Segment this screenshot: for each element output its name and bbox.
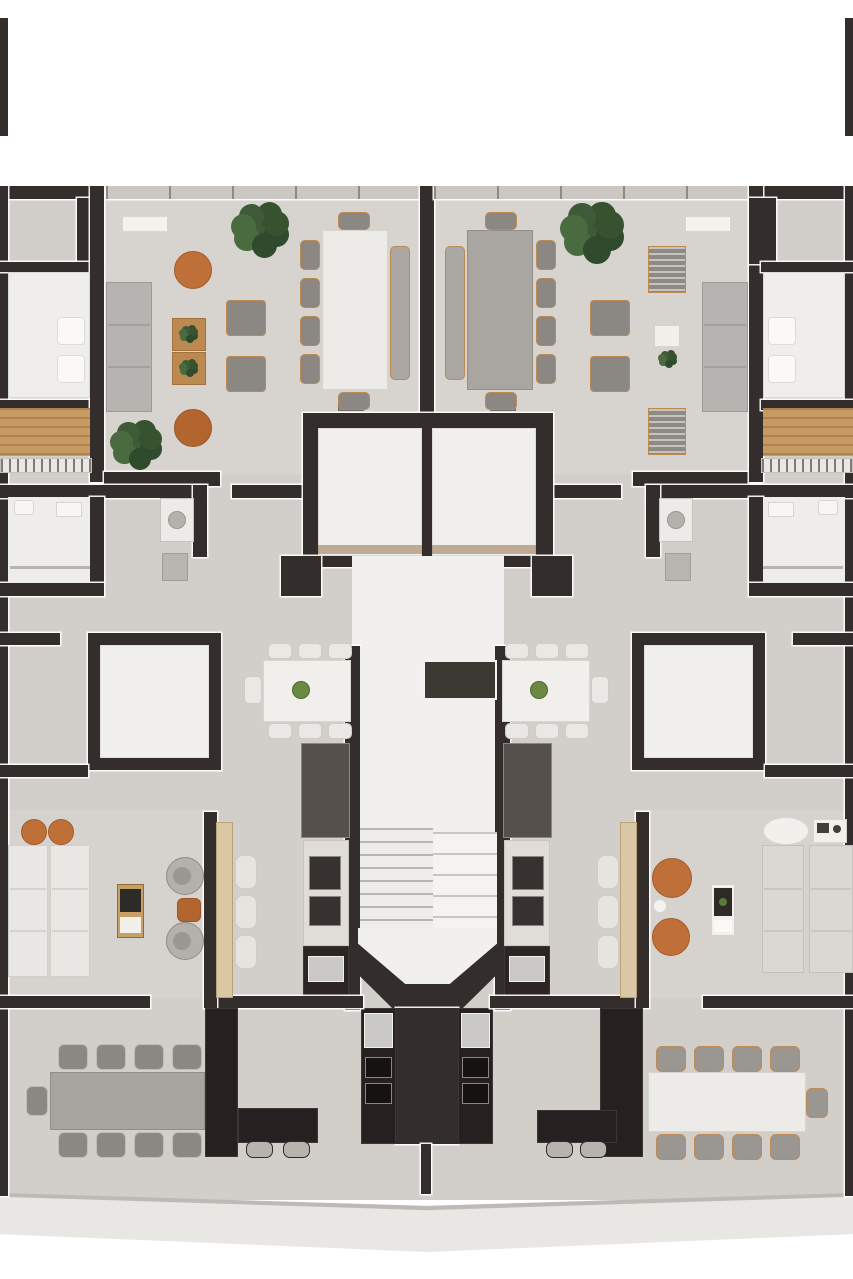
core-wing-right <box>532 556 572 596</box>
marble-roomC <box>644 645 753 758</box>
centerpieceC <box>530 681 548 699</box>
wall-left-outer-lower <box>0 472 8 1196</box>
tall-cabinetD <box>620 822 637 998</box>
floor-plan <box>0 0 853 1279</box>
core-wing-left <box>281 556 321 596</box>
side-chairsB-3 <box>235 935 257 969</box>
poufB-1 <box>21 819 47 845</box>
applianceC <box>665 553 691 581</box>
side-chairsD-2 <box>597 895 619 929</box>
coffee-tableB-tray-light <box>120 917 141 933</box>
lounge-chairC-1 <box>648 246 686 293</box>
dining-chairsB-mid-top-1 <box>268 643 292 659</box>
dining-endchairD-south <box>806 1088 828 1118</box>
plantA-corner-leaf-6 <box>110 431 133 454</box>
sofaB1-seam-1 <box>10 888 46 890</box>
wall-bathA-bed-sep <box>0 262 92 272</box>
round-chairD-1 <box>652 858 692 898</box>
wall-center-stub <box>421 1144 431 1194</box>
stoolD-1 <box>546 1141 573 1158</box>
balconyC-deck <box>763 408 853 456</box>
coffee-tableD-tray-light <box>714 920 732 932</box>
dining-chairsD-south-bottom-4 <box>770 1134 800 1160</box>
dining-chairsD-south-top-1 <box>656 1046 686 1072</box>
bathB-toilet <box>14 500 34 515</box>
elevator-cab-left <box>318 428 422 556</box>
plantC-palm-leaf-7 <box>596 211 624 239</box>
dining-endchairA-bottom <box>338 392 370 410</box>
bathC2-sink <box>768 502 794 517</box>
applianceB <box>162 553 188 581</box>
stoolD-2 <box>580 1141 607 1158</box>
armchairC-1 <box>590 300 630 336</box>
sofaB1-seam-2 <box>10 930 46 932</box>
kitchenD-sink <box>364 1013 393 1048</box>
wall-livingC-south <box>633 472 750 486</box>
side-chairsB-2 <box>235 895 257 929</box>
bedroomB-wall-north <box>0 633 60 645</box>
dining-tableD-south <box>648 1072 806 1132</box>
dining-chairsB-mid-top-3 <box>328 643 352 659</box>
dining-chairsB-south-top-3 <box>134 1044 164 1070</box>
round-chairD-2 <box>652 918 690 956</box>
wall-livingA-west <box>90 186 104 482</box>
wall-laundryB-east <box>193 485 207 557</box>
wall-hall-top-right-b <box>550 485 621 498</box>
sofaB-column-2 <box>50 845 90 977</box>
sofaA-seam-2 <box>108 366 150 368</box>
kitchenB-cabinets <box>301 743 350 838</box>
dining-endchairB-mid <box>244 676 262 704</box>
dining-chairsD-south-bottom-1 <box>656 1134 686 1160</box>
wall-hall-top-left-b <box>232 485 303 498</box>
dining-chairsC-right-3 <box>536 316 556 346</box>
dining-benchC <box>445 246 465 380</box>
dining-chairsA-left-4 <box>300 354 320 384</box>
kitchenC-sink <box>509 956 545 982</box>
dining-tableA <box>322 230 388 390</box>
side-chairsD-3 <box>597 935 619 969</box>
dining-chairsA-left-1 <box>300 240 320 270</box>
sofaD-column-2 <box>809 845 853 973</box>
armchairC-2 <box>590 356 630 392</box>
dining-chairsB-mid-bottom-1 <box>268 723 292 739</box>
elevator-door-left <box>318 545 422 554</box>
armchairA-2 <box>226 356 266 392</box>
wall-stub-top-left <box>0 18 8 136</box>
terrace-south <box>0 1196 853 1252</box>
plantC-palm-leaf-5 <box>583 236 611 264</box>
kitchenE-sink <box>461 1013 490 1048</box>
coffee-tableB-tray-dark <box>120 889 141 912</box>
dining-chairsB-south-bottom-2 <box>96 1132 126 1158</box>
dining-chairsC-mid-bottom-3 <box>565 723 589 739</box>
dining-chairsC-right-1 <box>536 240 556 270</box>
consoleA <box>122 216 168 232</box>
side-tableC <box>654 325 680 347</box>
elevator-lobby <box>352 556 504 646</box>
coffee-tableD-plant <box>719 898 727 906</box>
ball-tableD <box>653 899 667 913</box>
dining-tableC <box>467 230 533 390</box>
dining-endchairC-mid <box>591 676 609 704</box>
dining-chairsB-south-top-2 <box>96 1044 126 1070</box>
kitchenE-cooktop-1 <box>462 1057 489 1078</box>
bedroomC-wall-north <box>793 633 853 645</box>
wall-center-south <box>396 1008 458 1144</box>
side-chairsD-1 <box>597 855 619 889</box>
bedroomC-wall-south <box>765 765 853 777</box>
bathB-sink <box>56 502 82 517</box>
sofaD2-seam-1 <box>811 888 851 890</box>
dining-chairsC-right-2 <box>536 278 556 308</box>
sofaB-column-1 <box>8 845 48 977</box>
sofaD2-seam-2 <box>811 930 851 932</box>
stoolB-1 <box>246 1141 273 1158</box>
wall-livingD-divider <box>636 812 649 1008</box>
lobby-doormat <box>423 660 497 700</box>
sofaA <box>106 282 152 412</box>
poufB-2 <box>48 819 74 845</box>
sofaB2-seam-1 <box>52 888 88 890</box>
trayD-item <box>817 823 829 833</box>
dining-chairsA-left-3 <box>300 316 320 346</box>
islandB-arm <box>238 1108 318 1143</box>
sofaD1-seam-1 <box>764 888 802 890</box>
lounge-chairC-2 <box>648 408 686 455</box>
bathB-shower-line <box>10 566 90 569</box>
oval-side-tableD <box>763 817 809 845</box>
trayD-dot <box>833 825 841 833</box>
dining-chairsC-mid-bottom-2 <box>535 723 559 739</box>
plantA-large-leaf-7 <box>264 211 289 236</box>
centerpieceB <box>292 681 310 699</box>
kitchenC-oven-1 <box>512 856 544 890</box>
dining-chairsB-mid-bottom-2 <box>298 723 322 739</box>
dining-chairsC-mid-top-1 <box>505 643 529 659</box>
sofaB2-seam-2 <box>52 930 88 932</box>
dining-chairsD-south-top-2 <box>694 1046 724 1072</box>
balconyA-railing <box>0 458 92 473</box>
dining-endchairC-bottom <box>485 392 517 410</box>
bedC-pillow-2 <box>768 355 796 383</box>
plantA-corner-leaf-7 <box>140 428 163 451</box>
dining-endchairB-south <box>26 1086 48 1116</box>
dining-chairsD-south-top-3 <box>732 1046 762 1072</box>
window-band-top-left <box>106 186 420 199</box>
wall-bathC-bed-sep <box>761 262 853 272</box>
wall-bathB-south <box>0 583 104 596</box>
sofaD1-seam-2 <box>764 930 802 932</box>
poufA <box>174 409 212 447</box>
wall-bottomleft-a <box>0 996 150 1008</box>
stoolB-2 <box>283 1141 310 1158</box>
kitchenB-oven-2 <box>309 896 341 926</box>
window-band-top-right <box>434 186 750 199</box>
kitchenC-cabinets <box>503 743 552 838</box>
poufB-3 <box>177 898 201 922</box>
dining-tableB-south <box>50 1072 205 1130</box>
wall-bathC2-west <box>749 497 763 590</box>
kitchenD-cooktop-2 <box>365 1083 392 1104</box>
balconyA-deck <box>0 408 90 456</box>
sofaC-seam-1 <box>704 324 746 326</box>
washerB-drum <box>168 511 186 529</box>
lounge-chairB-2-seat <box>173 932 191 950</box>
sofaA-seam-1 <box>108 324 150 326</box>
wall-livingA-south <box>104 472 220 486</box>
dining-chairsC-mid-top-2 <box>535 643 559 659</box>
round-chairA <box>174 251 212 289</box>
dining-benchA <box>390 246 410 380</box>
islandD-arm <box>537 1110 617 1143</box>
stair-flight-left <box>360 828 433 934</box>
dining-chairsB-south-bottom-4 <box>172 1132 202 1158</box>
wall-bathC2-south <box>749 583 853 596</box>
dining-endchairC-top <box>485 212 517 230</box>
marble-roomB <box>100 645 209 758</box>
dining-chairsC-right-4 <box>536 354 556 384</box>
elevator-cab-right <box>432 428 536 556</box>
wall-stub-top-right <box>845 18 853 136</box>
wall-right-outer-upper <box>845 186 853 408</box>
consoleC <box>685 216 731 232</box>
tall-cabinetB <box>216 822 233 998</box>
wall-bathB-east <box>90 497 104 590</box>
bedC-pillow-1 <box>768 317 796 345</box>
bedA-pillow-2 <box>57 355 85 383</box>
dining-chairsD-south-top-4 <box>770 1046 800 1072</box>
sofaC-seam-2 <box>704 366 746 368</box>
dining-chairsB-mid-bottom-3 <box>328 723 352 739</box>
dining-chairsB-south-top-1 <box>58 1044 88 1070</box>
wall-party-top <box>420 186 434 420</box>
sofaC <box>702 282 748 412</box>
kitchenB-sink <box>308 956 344 982</box>
lounge-chairB-1-seat <box>173 867 191 885</box>
kitchenD-cooktop-1 <box>365 1057 392 1078</box>
armchairA-1 <box>226 300 266 336</box>
dining-chairsB-south-bottom-3 <box>134 1132 164 1158</box>
bathC2-toilet <box>818 500 838 515</box>
islandB-vertical <box>205 1008 238 1157</box>
dining-chairsB-south-bottom-1 <box>58 1132 88 1158</box>
dining-chairsC-mid-top-3 <box>565 643 589 659</box>
bedroomB-wall-south <box>0 765 88 777</box>
washerC-drum <box>667 511 685 529</box>
dining-endchairA-top <box>338 212 370 230</box>
dining-chairsB-mid-top-2 <box>298 643 322 659</box>
dining-chairsC-mid-bottom-1 <box>505 723 529 739</box>
dining-chairsA-left-2 <box>300 278 320 308</box>
dining-chairsD-south-bottom-2 <box>694 1134 724 1160</box>
wall-bathC-chase <box>749 198 776 264</box>
wall-laundryC-west <box>646 485 660 557</box>
sofaD-column-1 <box>762 845 804 973</box>
kitchenB-oven-1 <box>309 856 341 890</box>
kitchenE-cooktop-2 <box>462 1083 489 1104</box>
balconyC-railing <box>761 458 853 473</box>
plantC-palm-leaf-6 <box>560 215 588 243</box>
side-chairsB-1 <box>235 855 257 889</box>
dining-chairsB-south-top-4 <box>172 1044 202 1070</box>
wall-bottomright-b <box>703 996 853 1008</box>
kitchenC-oven-2 <box>512 896 544 926</box>
elevator-door-right <box>432 545 536 554</box>
bedA-pillow-1 <box>57 317 85 345</box>
dining-chairsD-south-bottom-3 <box>732 1134 762 1160</box>
wall-left-outer-upper <box>0 186 8 408</box>
bathC2-shower-line <box>763 566 843 569</box>
